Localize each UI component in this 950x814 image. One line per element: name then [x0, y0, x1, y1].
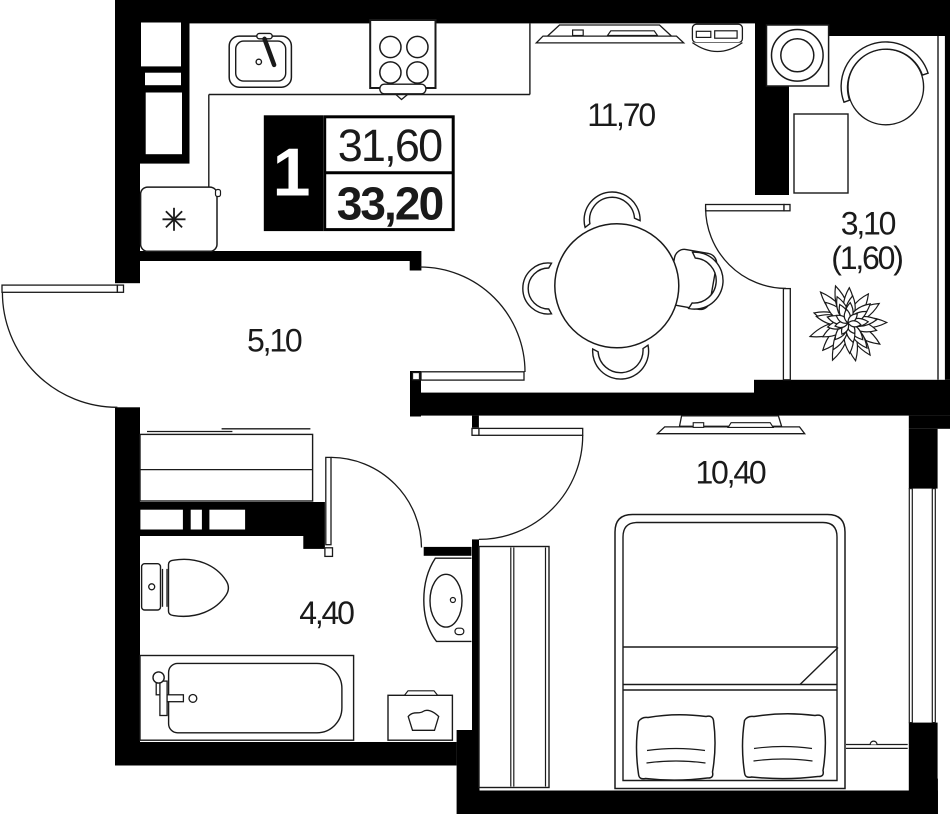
svg-text:3,10: 3,10	[841, 206, 896, 242]
svg-text:1: 1	[273, 135, 311, 211]
svg-text:11,70: 11,70	[587, 97, 655, 133]
svg-text:(1,60): (1,60)	[831, 240, 902, 276]
svg-text:31,60: 31,60	[338, 120, 442, 171]
svg-text:5,10: 5,10	[247, 323, 302, 359]
svg-text:33,20: 33,20	[337, 177, 443, 229]
svg-text:10,40: 10,40	[695, 455, 765, 491]
svg-text:4,40: 4,40	[299, 595, 354, 631]
